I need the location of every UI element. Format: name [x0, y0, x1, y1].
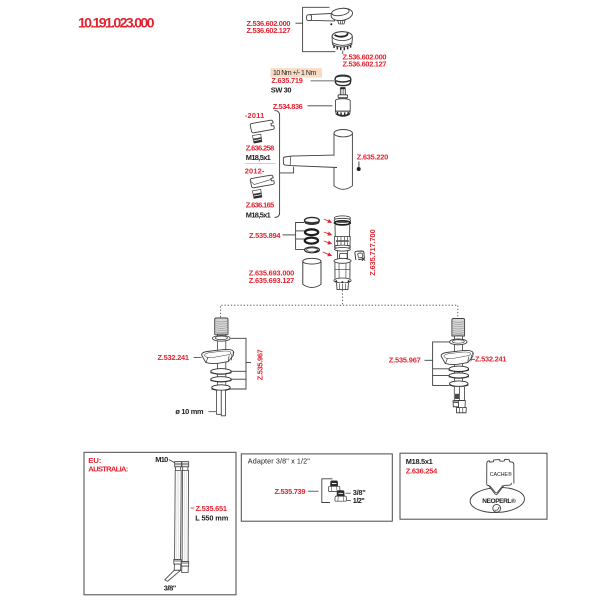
svg-text:Z.535.967: Z.535.967 [255, 349, 264, 380]
svg-text:M18,5x1: M18,5x1 [246, 210, 271, 219]
svg-text:Z.635.693.127: Z.635.693.127 [249, 276, 294, 285]
svg-text:CACHE®: CACHE® [490, 471, 512, 478]
svg-text:2012-: 2012- [245, 167, 265, 176]
svg-text:3/8": 3/8" [164, 584, 177, 593]
svg-text:EU:: EU: [88, 456, 101, 465]
svg-text:Z.635.220: Z.635.220 [357, 152, 389, 161]
svg-text:Z.535.739: Z.535.739 [275, 487, 306, 496]
svg-text:NEOPERL®: NEOPERL® [482, 497, 516, 505]
svg-text:Z.535.967: Z.535.967 [389, 355, 421, 364]
svg-text:Z.636.258: Z.636.258 [246, 143, 274, 152]
svg-text:Z.635.717.700: Z.635.717.700 [368, 229, 377, 276]
svg-text:M10: M10 [155, 455, 168, 464]
svg-text:Z.535.651: Z.535.651 [196, 504, 228, 513]
svg-text:M18.5x1: M18.5x1 [406, 457, 433, 466]
svg-text:AUSTRALIA:: AUSTRALIA: [88, 465, 128, 474]
svg-text:Z.532.241: Z.532.241 [158, 353, 190, 362]
svg-text:Z.532.241: Z.532.241 [475, 355, 507, 364]
svg-text:ø 10 mm: ø 10 mm [175, 407, 204, 416]
svg-text:Z.635.719: Z.635.719 [271, 76, 303, 85]
svg-text:1/2": 1/2" [353, 496, 365, 505]
svg-text:Z.636.254: Z.636.254 [406, 466, 438, 475]
svg-text:Z.534.836: Z.534.836 [273, 102, 303, 111]
svg-text:SW 30: SW 30 [271, 85, 292, 94]
svg-text:Z.636.165: Z.636.165 [246, 200, 274, 209]
svg-text:-2011: -2011 [245, 111, 264, 120]
svg-text:Adapter 3/8" x 1/2": Adapter 3/8" x 1/2" [248, 457, 310, 466]
svg-text:L 550 mm: L 550 mm [195, 513, 228, 522]
svg-text:10.191.023.000: 10.191.023.000 [78, 15, 155, 31]
svg-text:M18,5x1: M18,5x1 [246, 153, 271, 162]
svg-text:Z.536.602.127: Z.536.602.127 [247, 26, 291, 35]
svg-text:Z.535.894: Z.535.894 [249, 231, 281, 240]
svg-text:Z.536.602.127: Z.536.602.127 [343, 59, 387, 68]
